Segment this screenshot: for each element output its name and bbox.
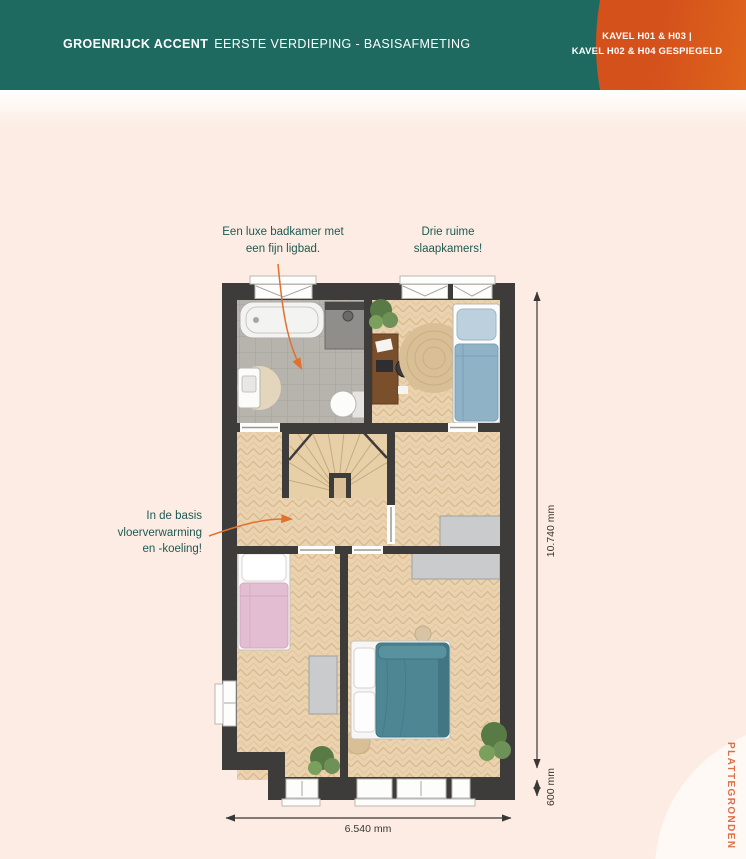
bathtub xyxy=(240,302,324,338)
brochure-page: GROENRIJCK ACCENTEERSTE VERDIEPING - BAS… xyxy=(0,0,746,859)
floor-plan xyxy=(0,0,746,859)
wardrobe xyxy=(412,552,500,579)
bed-pink xyxy=(238,550,290,650)
annotation-bathroom-line1: Een luxe badkamer met xyxy=(183,224,383,241)
bed-teal xyxy=(346,641,450,754)
annotation-heating-line2: vloerverwarming xyxy=(60,525,202,542)
washbasin xyxy=(237,366,281,410)
dresser xyxy=(309,656,337,714)
annotation-bathroom: Een luxe badkamer met een fijn ligbad. xyxy=(183,224,383,258)
annotation-heating: In de basis vloerverwarming en -koeling! xyxy=(60,508,202,558)
pouf xyxy=(415,626,431,642)
annotation-bedrooms-line2: slaapkamers! xyxy=(378,241,518,258)
annotation-bedrooms: Drie ruime slaapkamers! xyxy=(378,224,518,258)
annotation-heating-line1: In de basis xyxy=(60,508,202,525)
bed-blue xyxy=(453,304,500,423)
toilet xyxy=(330,391,365,418)
annotation-bathroom-line2: een fijn ligbad. xyxy=(183,241,383,258)
dimension-height-label: 10.740 mm xyxy=(545,505,557,558)
annotation-heating-line3: en -koeling! xyxy=(60,541,202,558)
dimension-extension-label: 600 mm xyxy=(545,768,557,806)
plattegronden-tab: PLATTEGRONDEN xyxy=(725,742,736,849)
dimension-width-label: 6.540 mm xyxy=(345,823,392,835)
staircase xyxy=(288,432,388,498)
annotation-bedrooms-line1: Drie ruime xyxy=(378,224,518,241)
